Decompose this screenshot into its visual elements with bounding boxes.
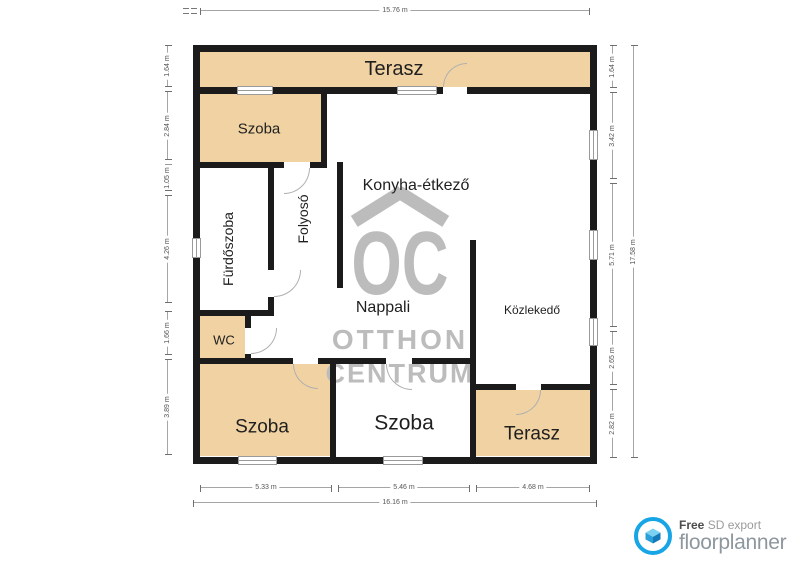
floorplanner-text: Free SD export floorplanner bbox=[679, 519, 786, 553]
watermark-line1: OTTHON bbox=[332, 326, 468, 354]
wall-szoba-bl-right bbox=[330, 358, 336, 457]
dimension-left-1: 1.64 m bbox=[167, 45, 168, 87]
window-szoba-bl-bottom bbox=[238, 456, 277, 465]
floorplan-canvas: OC OTTHON CENTRUM Terasz Szoba Konyha-ét… bbox=[0, 0, 800, 565]
dimension-label: 4.26 m bbox=[164, 235, 172, 262]
dimension-bottom-total: 16.16 m bbox=[193, 502, 597, 503]
dimension-label: 2.82 m bbox=[609, 410, 617, 437]
window-furdoszoba-left bbox=[192, 238, 201, 258]
dimension-left-4: 4.26 m bbox=[167, 195, 168, 303]
room-label-szoba-bottom-left: Szoba bbox=[235, 418, 289, 437]
window-szoba-tl bbox=[237, 86, 273, 95]
floorplanner-branding: Free SD export floorplanner bbox=[634, 517, 786, 555]
sd-export-label: SD export bbox=[708, 518, 761, 532]
dimension-label: 5.71 m bbox=[609, 241, 617, 268]
dimension-bottom-1: 5.33 m bbox=[200, 487, 332, 488]
dimension-right-3: 5.71 m bbox=[612, 183, 613, 327]
room-label-terasz-top: Terasz bbox=[365, 59, 424, 79]
dimension-label: 3.89 m bbox=[164, 393, 172, 420]
dimension-left-3: 1.05 m bbox=[167, 164, 168, 191]
dimension-label: 2.65 m bbox=[609, 344, 617, 371]
wall-szoba-tl-right bbox=[321, 94, 327, 168]
dimension-left-6: 3.89 m bbox=[167, 359, 168, 455]
cube-icon bbox=[643, 526, 663, 546]
dimension-label: 5.33 m bbox=[252, 484, 279, 492]
dimension-label: 1.64 m bbox=[609, 53, 617, 80]
window-right-1 bbox=[589, 130, 598, 160]
dimension-bottom-2: 5.46 m bbox=[338, 487, 470, 488]
dimension-label: 1.66 m bbox=[164, 319, 172, 346]
door-gap-terasz-top bbox=[443, 87, 467, 94]
dimension-label: 1.64 m bbox=[164, 52, 172, 79]
dimension-end-marks bbox=[183, 8, 189, 14]
free-label: Free bbox=[679, 518, 704, 532]
room-label-konyha-etkezo: Konyha-étkező bbox=[363, 178, 470, 194]
dimension-label: 2.84 m bbox=[164, 112, 172, 139]
brand-name: floorplanner bbox=[679, 532, 786, 553]
wall-folyoso-right bbox=[337, 162, 343, 288]
room-label-kozlekedo: Közlekedő bbox=[504, 304, 560, 316]
watermark-monogram: OC bbox=[351, 219, 448, 309]
dimension-left-2: 2.84 m bbox=[167, 91, 168, 160]
room-label-furdoszoba: Fürdőszoba bbox=[221, 212, 235, 286]
dimension-label: 15.76 m bbox=[379, 7, 410, 15]
room-label-szoba-bottom-mid: Szoba bbox=[374, 413, 434, 434]
dimension-label: 17.58 m bbox=[630, 236, 638, 267]
dimension-right-1: 1.64 m bbox=[612, 45, 613, 88]
floorplanner-logo-icon bbox=[634, 517, 672, 555]
window-right-2 bbox=[589, 230, 598, 260]
room-label-terasz-bottom: Terasz bbox=[504, 425, 560, 444]
room-label-wc: WC bbox=[213, 334, 235, 347]
window-konyha-top bbox=[397, 86, 437, 95]
dimension-right-total: 17.58 m bbox=[633, 45, 634, 458]
dimension-right-2: 3.42 m bbox=[612, 92, 613, 179]
dimension-right-5: 2.82 m bbox=[612, 389, 613, 458]
room-label-folyoso: Folyosó bbox=[296, 194, 310, 243]
dimension-label: 4.68 m bbox=[519, 484, 546, 492]
dimension-bottom-3: 4.68 m bbox=[476, 487, 590, 488]
dimension-label: 3.42 m bbox=[609, 122, 617, 149]
window-right-3 bbox=[589, 318, 598, 346]
room-label-nappali: Nappali bbox=[356, 300, 410, 316]
dimension-label: 1.05 m bbox=[164, 164, 172, 191]
dimension-end-marks bbox=[191, 8, 197, 14]
dimension-left-5: 1.66 m bbox=[167, 311, 168, 355]
dimension-top-total: 15.76 m bbox=[200, 10, 590, 11]
wall-outer-top bbox=[193, 45, 597, 52]
room-label-szoba-top-left: Szoba bbox=[238, 122, 281, 137]
wall-furdoszoba-bottom bbox=[200, 310, 274, 316]
wall-kozlekedo-left bbox=[470, 240, 476, 457]
dimension-label: 16.16 m bbox=[379, 499, 410, 507]
dimension-right-4: 2.65 m bbox=[612, 331, 613, 385]
window-szoba-bm-bottom bbox=[383, 456, 423, 465]
dimension-label: 5.46 m bbox=[390, 484, 417, 492]
